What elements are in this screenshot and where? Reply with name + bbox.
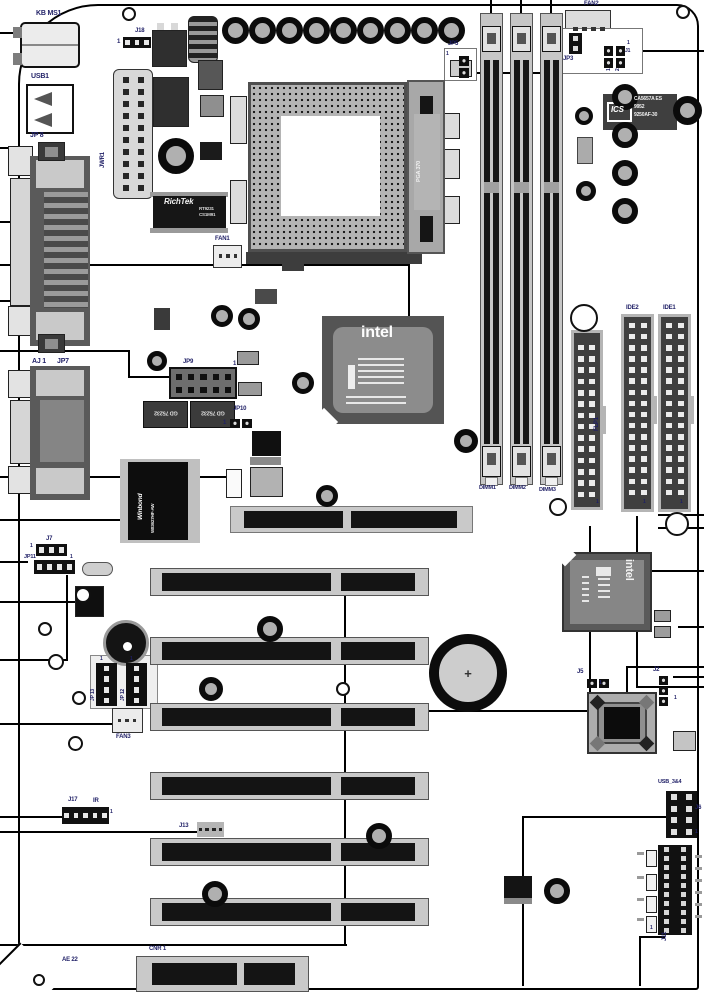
pin: [200, 387, 206, 393]
pin: [686, 794, 692, 800]
southbridge-logo-label: intel: [623, 559, 634, 581]
jp12-pin1-label: 1: [130, 657, 133, 662]
board-part: [244, 963, 295, 985]
j7-pin1-label: 1: [30, 544, 33, 549]
pin: [678, 323, 684, 329]
pin: [578, 367, 584, 373]
pin: [125, 719, 129, 723]
pin: [123, 101, 129, 107]
capacitor: [303, 17, 330, 44]
richtek-pn2-label: CS1M91: [199, 213, 215, 218]
dimm-latch-foot: [545, 477, 558, 486]
leader-line: [0, 350, 130, 352]
board-part: [237, 351, 259, 365]
pin: [678, 479, 684, 485]
dimm-latch-tab: [517, 33, 526, 44]
pin: [213, 387, 219, 393]
pin: [37, 564, 42, 569]
board-part: [688, 396, 694, 424]
pin: [133, 719, 137, 723]
board-part: [244, 511, 343, 528]
pin: [589, 345, 595, 351]
capacitor: [612, 122, 638, 148]
pin: [664, 865, 669, 870]
leader-line: [66, 575, 68, 661]
chip-print: [582, 576, 589, 604]
mounting-hole: [75, 587, 91, 603]
board-part: [504, 898, 532, 904]
capacitor: [576, 181, 596, 201]
pin: [39, 547, 44, 552]
dimm-key-notch: [514, 182, 529, 193]
pin: [678, 412, 684, 418]
capacitor: [544, 878, 570, 904]
mounting-hole: [33, 974, 45, 986]
pin: [629, 434, 635, 440]
pin: [666, 434, 672, 440]
pin: [641, 456, 647, 462]
pin: [678, 334, 684, 340]
j2-pin1-label: 1: [674, 696, 677, 701]
capacitor: [357, 17, 384, 44]
j2-pins: [657, 675, 670, 707]
j18-pin1-label: 1: [117, 39, 120, 45]
board-part: [637, 852, 644, 855]
jblock-1-label: 1: [627, 41, 630, 46]
jp12-label: JP 12: [121, 689, 126, 701]
pin: [671, 817, 677, 823]
pin: [578, 401, 584, 407]
pin: [664, 883, 669, 888]
dimm-slot-contact: [514, 60, 520, 444]
dimm1-label: DIMM1: [479, 486, 496, 492]
pin: [57, 564, 62, 569]
ics-line2-label: 9952: [634, 105, 644, 110]
pin: [666, 467, 672, 473]
pin: [242, 419, 252, 429]
pin: [681, 892, 686, 897]
mounting-hole: [72, 691, 86, 705]
leader-line: [678, 626, 704, 628]
board-part: [637, 898, 644, 901]
jp13-label: JP 13: [91, 689, 96, 701]
board-part: [36, 370, 84, 396]
ae22-label: AE 22: [62, 957, 78, 963]
pin: [678, 401, 684, 407]
board-part: [200, 142, 222, 160]
pin: [686, 806, 692, 812]
bios-chip: [604, 707, 640, 739]
pin: [641, 378, 647, 384]
fan1-pins: [217, 251, 239, 261]
pin: [629, 378, 635, 384]
board-part: [646, 896, 657, 913]
pin: [176, 374, 182, 380]
pin: [629, 356, 635, 362]
pin: [629, 467, 635, 473]
pin: [234, 254, 238, 258]
capacitor: [202, 881, 228, 907]
board-part: [646, 874, 657, 891]
pin: [138, 89, 144, 95]
richtek-label: RichTek: [164, 198, 193, 206]
dimm2-label: DIMM2: [509, 486, 526, 492]
capacitor: [316, 485, 338, 507]
pin: [225, 374, 231, 380]
ide2-pin1-label: 1: [643, 500, 646, 505]
pin: [666, 423, 672, 429]
ide2-label: IDE2: [626, 305, 639, 311]
winbond-pn-label: W83627HF-AW: [151, 504, 156, 533]
chip-print: [346, 396, 406, 406]
capacitor: [438, 17, 465, 44]
board-part: [654, 610, 671, 622]
pin: [578, 390, 584, 396]
pin: [664, 856, 669, 861]
pin: [225, 387, 231, 393]
jp10-pins: [229, 417, 253, 430]
leader-line: [128, 376, 172, 378]
ide1-label: IDE1: [663, 305, 676, 311]
pin: [64, 813, 69, 818]
pin: [123, 137, 129, 143]
pci-slot-opening: [341, 903, 415, 921]
pin: [666, 367, 672, 373]
leader-line: [0, 831, 198, 833]
pin: [83, 813, 88, 818]
board-part: [695, 867, 702, 870]
pin: [230, 419, 240, 429]
fan1-label: FAN1: [215, 236, 230, 242]
board-part: [444, 113, 460, 139]
pin: [681, 865, 686, 870]
pci-slot-opening: [162, 573, 331, 591]
cpu-socket-lever-housing: [407, 80, 445, 254]
pin: [459, 68, 469, 78]
pin: [629, 490, 635, 496]
usb-port-icon: [34, 113, 52, 127]
pin: [641, 323, 647, 329]
northbridge-logo-label: intel: [361, 325, 393, 341]
pin: [578, 356, 584, 362]
pin: [138, 149, 144, 155]
pin: [629, 323, 635, 329]
board-part: [153, 77, 189, 127]
southbridge-chip: [562, 552, 652, 632]
pin: [678, 467, 684, 473]
j13-label: J13: [179, 823, 188, 829]
pin: [219, 254, 223, 258]
pin: [205, 828, 208, 831]
jblock-j1-label: J1: [625, 49, 630, 54]
gd75232-a-label: GD 75232: [144, 409, 188, 415]
pin: [134, 698, 139, 703]
pin: [641, 479, 647, 485]
pin: [681, 910, 686, 915]
pin: [138, 125, 144, 131]
pin: [678, 345, 684, 351]
pin: [176, 387, 182, 393]
pin: [104, 698, 109, 703]
pin: [629, 412, 635, 418]
board-part: [646, 850, 657, 867]
pin: [138, 101, 144, 107]
chip-print: [358, 358, 404, 386]
pin: [118, 719, 122, 723]
leader-line: [0, 816, 64, 818]
pin: [641, 445, 647, 451]
dimm-latch-tab: [487, 453, 496, 465]
cpu-socket-center: [281, 116, 380, 216]
board-part: [654, 626, 671, 638]
pin: [678, 367, 684, 373]
board-part: [246, 252, 422, 264]
pin: [629, 401, 635, 407]
pin: [666, 412, 672, 418]
pin: [213, 374, 219, 380]
pin: [641, 367, 647, 373]
pin: [666, 401, 672, 407]
pin: [138, 173, 144, 179]
pin: [578, 480, 584, 486]
socket-slit: [420, 216, 433, 242]
capacitor: [612, 198, 638, 224]
board-part: [154, 308, 170, 330]
pin: [678, 490, 684, 496]
board-part: [152, 30, 187, 67]
pin: [123, 173, 129, 179]
capacitor: [292, 372, 314, 394]
pin: [459, 56, 469, 66]
capacitor: [238, 308, 260, 330]
board-part: [226, 469, 242, 498]
pin: [629, 367, 635, 373]
ics-line3-label: 9250AF-30: [634, 113, 657, 118]
j6-pin1-label: 1: [695, 830, 698, 835]
pin: [664, 919, 669, 924]
pin: [659, 697, 668, 706]
board-part: [637, 918, 644, 921]
pin: [589, 492, 595, 498]
jp7-label: JP7: [57, 358, 69, 365]
pin: [138, 137, 144, 143]
pin: [629, 423, 635, 429]
battery-plus-symbol: +: [464, 666, 472, 681]
usb1-label: USB1: [31, 73, 49, 80]
capacitor: [411, 17, 438, 44]
pin: [681, 928, 686, 933]
pin: [641, 434, 647, 440]
pin: [589, 446, 595, 452]
motherboard-diagram: + KB MS1J181USB1JP 8JWR1FAN2JP31J112JP51…: [0, 0, 704, 999]
buzzer: [103, 620, 149, 666]
pin: [681, 856, 686, 861]
pin: [573, 27, 578, 32]
pin: [138, 185, 144, 191]
pin: [138, 113, 144, 119]
pin: [144, 40, 149, 45]
jp13-pin1-label: 1: [100, 657, 103, 662]
board-part: [10, 178, 31, 306]
pin: [74, 813, 79, 818]
cnr1-label: CNR 1: [149, 946, 166, 952]
jp11-pins: [34, 560, 75, 574]
board-part: [444, 149, 460, 179]
pin: [123, 113, 129, 119]
board-part: [695, 879, 702, 882]
capacitor: [158, 138, 194, 174]
leader-line: [642, 50, 704, 52]
pin: [629, 479, 635, 485]
capacitor: [330, 17, 357, 44]
pin: [678, 356, 684, 362]
board-part: [40, 400, 84, 462]
j5-label: J5: [577, 669, 583, 675]
capacitor: [211, 305, 233, 327]
board-part: [188, 16, 218, 63]
pin: [134, 676, 139, 681]
chip-print: [596, 567, 611, 576]
pin: [629, 390, 635, 396]
pin: [589, 379, 595, 385]
board-part: [230, 96, 247, 144]
j2-label: J2: [653, 667, 659, 673]
pin: [641, 356, 647, 362]
aj1-label: AJ 1: [32, 358, 46, 365]
pin: [678, 456, 684, 462]
pin: [666, 445, 672, 451]
board-part: [36, 468, 84, 494]
pin: [629, 334, 635, 340]
pin: [582, 27, 587, 32]
pin: [573, 46, 578, 51]
capacitor: [366, 823, 392, 849]
j13-pins: [197, 822, 224, 837]
board-part: [36, 160, 84, 188]
leader-line: [636, 686, 704, 688]
jumper-block-j1: [603, 45, 626, 69]
pin: [666, 334, 672, 340]
jp8-label: JP 8: [30, 132, 43, 139]
dimm-slot-contact: [544, 60, 550, 444]
j17-pin1-label: 1: [110, 810, 113, 815]
pin: [123, 77, 129, 83]
pin: [589, 469, 595, 475]
jp5-pin1-label: 1: [446, 52, 449, 57]
board-part: [45, 147, 58, 157]
pin: [659, 676, 668, 685]
capacitor: [673, 96, 702, 125]
pin: [59, 547, 64, 552]
j11-label: J11: [662, 932, 668, 941]
pin: [664, 910, 669, 915]
board-part: [250, 457, 281, 465]
jblock-c2-label: 2: [616, 68, 621, 71]
pin: [681, 901, 686, 906]
board-part: [13, 27, 22, 38]
leader-line: [627, 666, 704, 668]
jblock-c1-label: 1: [607, 68, 612, 71]
pin: [578, 458, 584, 464]
pin: [629, 345, 635, 351]
pin: [134, 666, 139, 671]
pin: [578, 446, 584, 452]
leader-line: [408, 264, 410, 316]
ide2-pins: [626, 320, 650, 498]
pci-slot-opening: [162, 708, 331, 726]
pci-slot-opening: [162, 777, 331, 795]
buzzer-hole: [123, 642, 132, 651]
pin: [666, 490, 672, 496]
capacitor: [199, 677, 223, 701]
cmos-battery: +: [429, 634, 507, 712]
j11-pin1-label: 1: [650, 926, 653, 931]
pin: [104, 676, 109, 681]
pin: [578, 435, 584, 441]
pin: [578, 413, 584, 419]
capacitor: [276, 17, 303, 44]
board-part: [252, 431, 281, 456]
ics-line1-label: CA5657A ES: [634, 97, 662, 102]
jp9-pins: [173, 371, 234, 396]
capacitor: [575, 107, 593, 125]
pin: [686, 829, 692, 835]
board-part: [651, 396, 657, 424]
board-part: [673, 731, 696, 751]
j17-pins: [62, 807, 109, 824]
pin: [616, 46, 625, 55]
pin: [666, 479, 672, 485]
pin: [641, 334, 647, 340]
board-part: [250, 467, 283, 497]
pin: [678, 423, 684, 429]
pin: [123, 161, 129, 167]
pin: [123, 89, 129, 95]
jwr1-pins: [118, 74, 149, 194]
bios-plcc-socket: [587, 692, 657, 754]
pin: [578, 469, 584, 475]
jp10-label: JP10: [233, 406, 246, 412]
pin: [589, 401, 595, 407]
mounting-hole: [665, 512, 689, 536]
pci-slot-opening: [341, 642, 415, 660]
mounting-hole: [38, 622, 52, 636]
leader-line: [0, 519, 128, 521]
usb-port-icon: [34, 92, 52, 106]
pin: [589, 356, 595, 362]
pin: [641, 490, 647, 496]
capacitor: [249, 17, 276, 44]
pin: [104, 687, 109, 692]
dimm-slot-contact: [484, 60, 490, 444]
pin: [659, 687, 668, 696]
pin: [578, 492, 584, 498]
pin: [681, 847, 686, 852]
jp3-pins: [569, 33, 582, 54]
pin: [123, 185, 129, 191]
pin: [573, 36, 578, 41]
pin: [589, 435, 595, 441]
dimm-latch-tab: [487, 33, 496, 44]
leader-line: [650, 570, 704, 572]
board-part: [152, 963, 237, 985]
j7-label: J7: [46, 536, 52, 542]
pin: [678, 445, 684, 451]
pin: [641, 390, 647, 396]
pin: [226, 254, 230, 258]
dimm-key-notch: [484, 182, 499, 193]
pin: [678, 434, 684, 440]
